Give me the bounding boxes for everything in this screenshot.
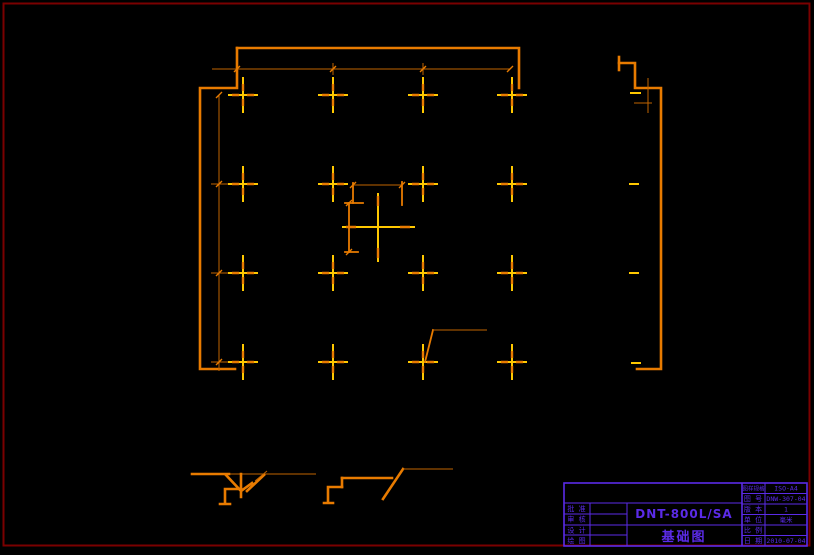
right-row-label: 单 位 [744, 515, 763, 524]
right-row-label: 日 期 [744, 537, 763, 545]
left-row-label: 设 计 [567, 526, 586, 535]
drawing-title-text: 基础图 [660, 529, 706, 545]
model-number-text: DNT-800L/SA [635, 507, 732, 521]
right-row-value: DNW-307-04 [766, 495, 805, 503]
cad-viewport: DNT-800L/SA 基础图 批 准 审 核 设 计 绘 图 图样规格 图 号… [0, 0, 814, 555]
right-row-label: 比 例 [744, 526, 763, 535]
right-row-value: ISO-A4 [774, 485, 798, 493]
right-row-value: 2010-07-04 [766, 537, 805, 545]
cad-canvas: DNT-800L/SA 基础图 批 准 审 核 设 计 绘 图 图样规格 图 号… [0, 0, 814, 555]
right-row-label: 图 号 [744, 495, 763, 503]
left-row-label: 审 核 [567, 515, 586, 524]
right-row-value: 毫米 [780, 515, 794, 524]
left-row-label: 批 准 [567, 504, 586, 513]
left-row-label: 绘 图 [567, 536, 586, 545]
canvas-background [0, 0, 814, 555]
right-row-label: 版 本 [744, 505, 763, 514]
right-row-value: 1 [784, 506, 788, 514]
right-row-label: 图样规格 [742, 485, 765, 493]
